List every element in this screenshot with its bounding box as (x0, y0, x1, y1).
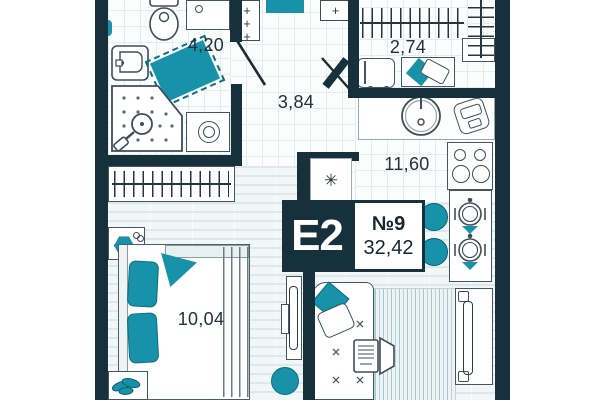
floor-plan: + + + + (0, 0, 600, 400)
apartment-type-badge: E2 (282, 200, 352, 272)
bath-cabinet (186, 0, 230, 30)
apartment-total-area: 32,42 (363, 237, 413, 260)
apartment-info-badge: №9 32,42 (352, 200, 425, 272)
wall-left (95, 0, 108, 400)
tv-console (455, 288, 493, 385)
wall-bedroom-living (303, 263, 315, 400)
washing-machine (186, 112, 230, 152)
blanket-fold (161, 253, 197, 287)
wall-right (495, 0, 510, 400)
plant-stand (108, 371, 148, 400)
room-label-kitchen: 11,60 (377, 155, 437, 175)
living-tv (463, 301, 473, 375)
vent-shaft: ✳ (310, 158, 352, 203)
room-label-bedroom: 10,04 (170, 310, 232, 330)
laptop-icon (352, 334, 398, 378)
wall-bath-right (231, 84, 242, 155)
apartment-type-label: E2 (291, 211, 343, 261)
wall-bath-bottom (108, 155, 242, 166)
shoe-box (401, 57, 455, 87)
vent-symbol: ✳ (324, 171, 338, 191)
wall-hall-wardrobe (348, 0, 359, 88)
stove (447, 142, 493, 190)
place-settings-icon (452, 198, 490, 278)
room-label-bathroom: 4,20 (176, 36, 236, 56)
door-mat (266, 0, 304, 13)
washbasin-icon (110, 44, 150, 84)
bathroom-door-swing (232, 36, 270, 88)
closet-rail (112, 183, 231, 185)
tv-stand-base (281, 304, 289, 334)
shower-icon (110, 84, 184, 154)
kitchen-sink-icon (398, 93, 444, 137)
plant-icon (109, 372, 145, 398)
suitcase (357, 58, 395, 88)
pillow (127, 312, 160, 364)
room-label-hallway: 3,84 (266, 93, 326, 113)
pillow (127, 260, 159, 308)
wardrobe-rail (360, 22, 464, 24)
pouf (271, 367, 299, 395)
bedroom-tv (289, 286, 298, 350)
utility-panel-2: + (320, 0, 351, 21)
room-label-wardrobe: 2,74 (378, 38, 438, 58)
wardrobe-rail-side (480, 0, 482, 58)
plus-mark: + (332, 4, 340, 17)
apartment-number: №9 (372, 213, 405, 236)
wall-wardrobe-bottom (348, 88, 495, 98)
